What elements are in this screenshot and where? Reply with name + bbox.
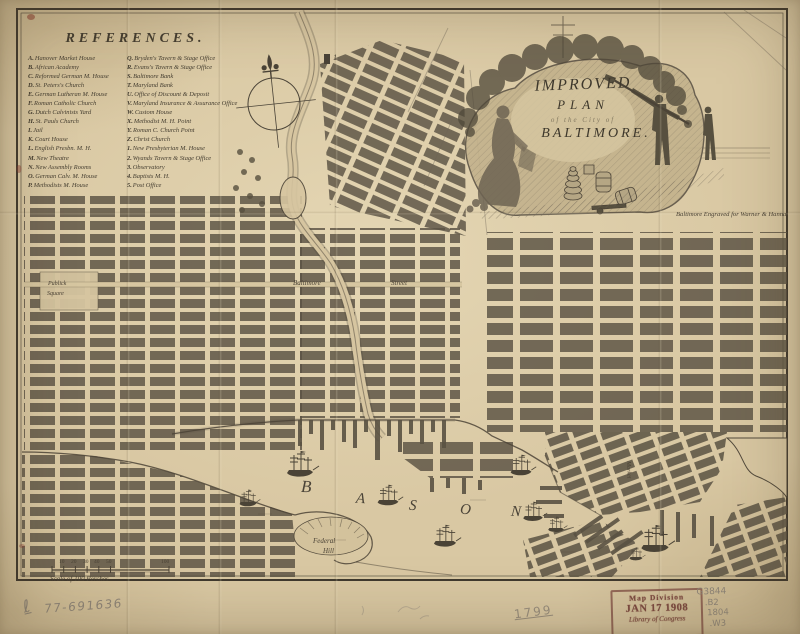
reference-key: 4.	[127, 173, 132, 180]
reference-key: W.	[127, 109, 134, 116]
reference-label: New Assembly Rooms	[35, 164, 91, 171]
scale-tick-label: 40	[94, 559, 100, 565]
reference-key: K.	[28, 136, 34, 143]
reference-label: Baltimore Bank	[133, 73, 173, 80]
map-sheet: REFERENCES. A.Hanover Market HouseB.Afri…	[0, 0, 800, 634]
reference-key: S.	[127, 73, 132, 80]
reference-label: Reformed German M. House	[35, 73, 109, 80]
reference-row: W.Custom House	[127, 108, 226, 117]
reference-row: 4.Baptists M. H.	[127, 172, 226, 181]
reference-row: N.New Assembly Rooms	[28, 163, 127, 172]
reference-row: O.German Calv. M. House	[28, 172, 127, 181]
reference-label: Court House	[35, 136, 68, 143]
reference-key: R.	[127, 64, 133, 71]
reference-row: Y.Roman C. Church Point	[127, 126, 226, 135]
grid-west	[24, 196, 302, 450]
cartouche-line3: of the City of	[488, 116, 678, 124]
reference-key: X.	[127, 118, 133, 125]
reference-row: V.Maryland Insurance & Assurance Office	[127, 99, 226, 108]
ship-icon	[434, 525, 461, 547]
building-marker	[324, 54, 330, 64]
reference-label: German Calv. M. House	[35, 173, 97, 180]
ship-icon	[641, 525, 675, 552]
reference-row: G.Dutch Calvinists Yard	[28, 108, 127, 117]
reference-label: Evans's Tavern & Stage Office	[134, 64, 212, 71]
square-label-line2: Square	[47, 291, 64, 297]
fleur-de-lis-icon	[260, 53, 280, 79]
reference-key: 2.	[127, 155, 132, 162]
cartouche-line2: PLAN	[488, 97, 678, 113]
stamp-line3: Library of Congress	[613, 614, 701, 624]
reference-row: H.St. Pauls Church	[28, 117, 127, 126]
bason-letter: O	[459, 502, 471, 520]
references-column-left: A.Hanover Market HouseB.African AcademyC…	[28, 54, 127, 190]
grid-fells-point	[545, 432, 727, 515]
reference-label: Roman Catholic Church	[34, 100, 96, 107]
reference-key: Z.	[127, 136, 133, 143]
cartouche-line1: IMPROVED	[488, 73, 679, 98]
reference-row: A.Hanover Market House	[28, 54, 127, 63]
square-label-line1: Publick	[48, 281, 66, 287]
reference-row: K.Court House	[28, 135, 127, 144]
references-title: REFERENCES.	[28, 31, 243, 47]
bason-letter: A	[355, 491, 365, 509]
reference-label: Dutch Calvinists Yard	[35, 109, 91, 116]
call-number-line4: .W3	[697, 618, 729, 630]
library-stamp: Map Division JAN 17 1908 Library of Cong…	[610, 588, 703, 634]
street-label-street: Street	[391, 279, 407, 287]
references-column-right: Q.Bryden's Tavern & Stage OfficeR.Evans'…	[127, 54, 226, 190]
ship-icon	[287, 451, 319, 477]
call-number-line1: G3844	[696, 586, 728, 598]
federal-hill-label-line1: Federal	[313, 537, 335, 545]
reference-label: Custom House	[135, 109, 172, 116]
marker-one-label: 1	[333, 53, 337, 62]
reference-label: Hanover Market House	[35, 55, 95, 62]
reference-row: 3.Observatory	[127, 163, 226, 172]
street-label-market: Market	[625, 461, 632, 479]
reference-label: Methodist M. H. Point	[134, 118, 191, 125]
reference-row: 2.Wyands Tavern & Stage Office	[127, 154, 226, 163]
reference-key: F.	[28, 100, 33, 107]
reference-row: P.Methodists M. House	[28, 181, 127, 190]
reference-label: Bryden's Tavern & Stage Office	[134, 55, 215, 62]
engraver-credit: Baltimore Engraved for Warner & Hanna.	[596, 211, 788, 218]
harbor-cove	[727, 438, 787, 498]
reference-key: O.	[28, 173, 34, 180]
reference-key: U.	[127, 91, 133, 98]
faint-pencil-marks	[362, 606, 429, 619]
reference-key: 1.	[127, 145, 132, 152]
reference-label: Maryland Bank	[133, 82, 173, 89]
bason-letter: B	[301, 477, 312, 497]
reference-label: Methodists M. House	[34, 182, 89, 189]
reference-key: L.	[28, 145, 34, 152]
federal-hill-label-line2: Hill	[323, 547, 334, 555]
reference-row: S.Baltimore Bank	[127, 72, 226, 81]
reference-key: N.	[28, 164, 34, 171]
reference-key: P.	[28, 182, 33, 189]
scale-tick-label: 20	[71, 559, 77, 565]
reference-key: V.	[127, 100, 132, 107]
reference-key: 5.	[127, 182, 132, 189]
reference-label: St. Pauls Church	[36, 118, 79, 125]
reference-row: F.Roman Catholic Church	[28, 99, 127, 108]
reference-label: Roman C. Church Point	[133, 127, 195, 134]
compass-rose	[231, 50, 320, 152]
reference-label: Jail	[33, 127, 43, 134]
reference-key: G.	[28, 109, 34, 116]
scale-tick-label: 10	[59, 559, 65, 565]
reference-key: T.	[127, 82, 132, 89]
cartouche-line4: BALTIMORE.	[514, 126, 678, 142]
stamp-line2: JAN 17 1908	[613, 602, 701, 615]
reference-row: T.Maryland Bank	[127, 81, 226, 90]
reference-key: Q.	[127, 55, 133, 62]
scale-caption: Scale of 100 Perches	[50, 575, 109, 583]
reference-key: A.	[28, 55, 34, 62]
ship-icon	[378, 485, 404, 506]
reference-label: Maryland Insurance & Assurance Office	[133, 100, 237, 107]
reference-row: Z.Christ Church	[127, 135, 226, 144]
scale-tick-label: 50	[106, 559, 112, 565]
reference-label: Post Office	[133, 182, 162, 189]
reference-label: Wyands Tavern & Stage Office	[133, 155, 211, 162]
reference-label: Baptists M. H.	[133, 173, 170, 180]
reference-row: C.Reformed German M. House	[28, 72, 127, 81]
reference-row: 5.Post Office	[127, 181, 226, 190]
reference-label: St. Peters's Church	[35, 82, 84, 89]
bason-letter: N	[510, 504, 521, 522]
grid-city-dock	[403, 440, 520, 478]
reference-row: M.New Theatre	[28, 154, 127, 163]
reference-row: R.Evans's Tavern & Stage Office	[127, 63, 226, 72]
cartouche-title: IMPROVED PLAN of the City of BALTIMORE.	[488, 76, 678, 142]
scale-tick-label: 30	[83, 559, 89, 565]
reference-label: Observatory	[133, 164, 165, 171]
reference-key: Y.	[127, 127, 132, 134]
street-label-baltimore: Baltimore	[293, 279, 321, 287]
reference-key: B.	[28, 64, 34, 71]
reference-row: Q.Bryden's Tavern & Stage Office	[127, 54, 226, 63]
reference-label: African Academy	[35, 64, 79, 71]
reference-key: D.	[28, 82, 34, 89]
call-number-line3: 1804	[697, 607, 729, 619]
reference-label: Office of Discount & Deposit	[134, 91, 209, 98]
reference-key: 3.	[127, 164, 132, 171]
reference-row: B.African Academy	[28, 63, 127, 72]
reference-row: 1.New Presbyterian M. House	[127, 144, 226, 153]
reference-label: New Theatre	[36, 155, 69, 162]
scale-tick-label: 100	[161, 559, 169, 565]
reference-key: H.	[28, 118, 35, 125]
reference-row: X.Methodist M. H. Point	[127, 117, 226, 126]
reference-label: New Presbyterian M. House	[133, 145, 205, 152]
call-number: G3844 .B2 1804 .W3	[696, 586, 729, 629]
reference-key: M.	[28, 155, 35, 162]
reference-row: D.St. Peters's Church	[28, 81, 127, 90]
grid-east	[487, 232, 787, 432]
reference-row: E.German Lutheran M. House	[28, 90, 127, 99]
reference-key: I.	[28, 127, 32, 134]
ship-icon	[523, 502, 547, 521]
reference-label: German Lutheran M. House	[35, 91, 107, 98]
references-panel: REFERENCES. A.Hanover Market HouseB.Afri…	[28, 31, 243, 190]
reference-label: English Presbn. M. H.	[35, 145, 92, 152]
reference-label: Christ Church	[134, 136, 171, 143]
reference-key: E.	[28, 91, 34, 98]
reference-row: L.English Presbn. M. H.	[28, 144, 127, 153]
reference-row: I.Jail	[28, 126, 127, 135]
reference-key: C.	[28, 73, 34, 80]
reference-row: U.Office of Discount & Deposit	[127, 90, 226, 99]
bason-letter: S	[408, 498, 417, 516]
